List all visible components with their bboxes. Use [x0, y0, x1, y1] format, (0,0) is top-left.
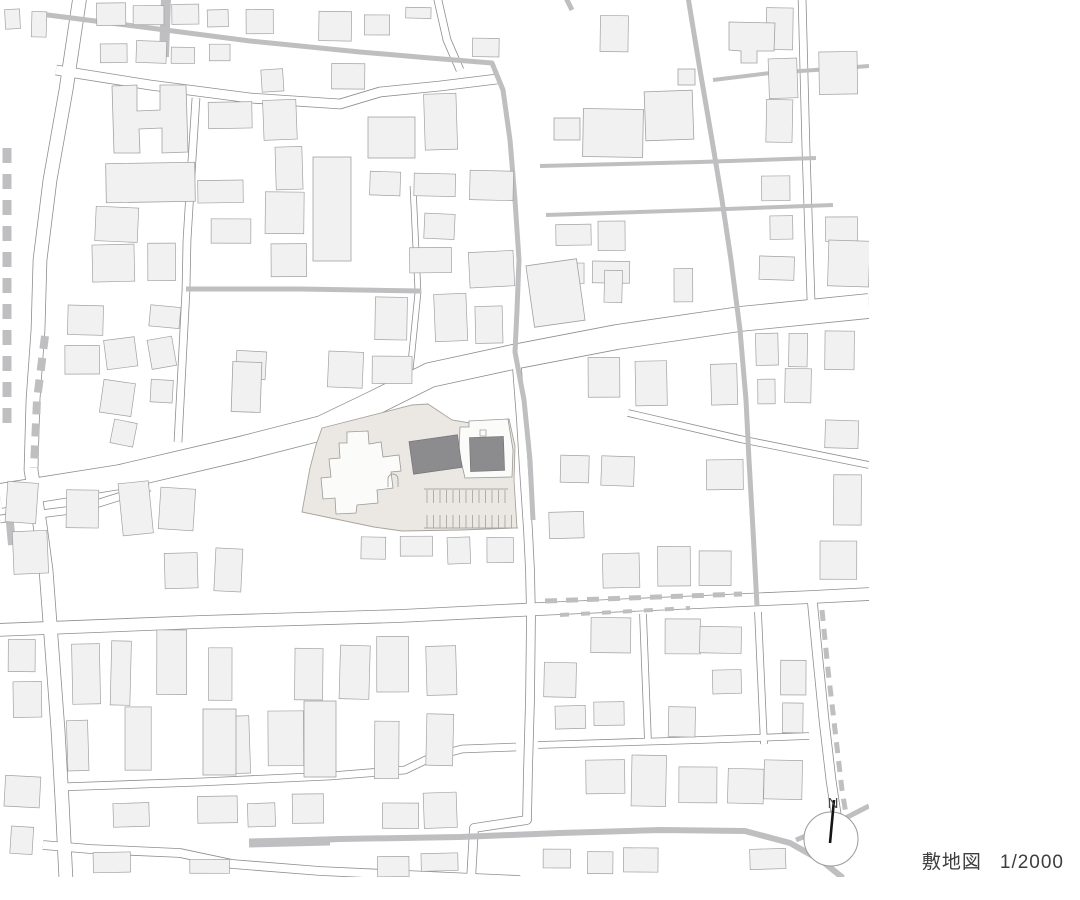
building-footprint: [657, 546, 690, 586]
site-building-b: [469, 436, 504, 471]
building-footprint: [374, 721, 399, 779]
building-footprint: [313, 157, 351, 261]
building-footprint: [268, 711, 304, 766]
building-footprint: [197, 796, 237, 823]
building-footprint: [147, 336, 177, 369]
building-footprint: [136, 41, 167, 64]
building-footprint: [118, 481, 153, 536]
building-footprint: [361, 537, 386, 559]
building-footprint: [820, 541, 857, 579]
building-footprint: [475, 306, 503, 344]
building-footprint: [554, 118, 580, 140]
building-footprint: [148, 243, 176, 280]
building-footprint: [113, 803, 150, 828]
map-canvas: N: [0, 0, 1080, 900]
building-footprint: [275, 146, 303, 190]
page: N 敷地図1/2000: [0, 0, 1080, 900]
building-footprint: [125, 707, 151, 770]
building-footprint: [261, 69, 284, 93]
building-footprint: [679, 767, 717, 803]
building-footprint: [382, 803, 418, 828]
building-footprint: [96, 3, 125, 26]
site-building-a: [409, 435, 462, 474]
map-layers: [0, 0, 870, 880]
building-footprint: [304, 701, 336, 777]
building-footprint: [364, 15, 389, 35]
building-footprint: [377, 636, 409, 692]
building-footprint: [65, 346, 100, 375]
building-footprint: [729, 22, 775, 63]
building-footprint: [10, 826, 34, 855]
north-label: N: [828, 795, 839, 812]
building-footprint: [766, 99, 793, 142]
building-footprint: [295, 648, 324, 700]
building-footprint: [66, 720, 89, 771]
building-footprint: [601, 456, 635, 487]
building-footprint: [100, 44, 127, 63]
building-footprint: [72, 644, 101, 705]
building-footprint: [332, 63, 365, 89]
building-footprint: [819, 51, 858, 94]
building-footprint: [67, 305, 103, 335]
building-footprint: [110, 419, 137, 447]
building-footprint: [434, 293, 468, 341]
building-footprint: [375, 297, 408, 340]
building-footprint: [421, 853, 458, 872]
building-footprint: [678, 69, 695, 85]
building-footprint: [203, 709, 236, 775]
building-footprint: [208, 102, 252, 129]
building-footprint: [588, 357, 620, 397]
building-footprint: [755, 333, 778, 365]
building-footprint: [785, 368, 812, 403]
building-footprint: [4, 775, 41, 808]
building-footprint: [591, 617, 631, 653]
building-footprint: [426, 714, 454, 766]
building-footprint: [406, 7, 431, 18]
building-footprint: [150, 379, 173, 403]
building-footprint: [825, 420, 859, 449]
building-footprint: [587, 852, 613, 874]
building-footprint: [712, 669, 741, 694]
building-footprint: [424, 93, 458, 150]
building-footprint: [198, 180, 244, 203]
building-footprint: [209, 648, 232, 701]
building-footprint: [157, 630, 187, 695]
building-footprint: [644, 90, 694, 141]
building-footprint: [635, 361, 667, 406]
building-footprint: [549, 511, 584, 538]
building-footprint: [263, 99, 298, 140]
building-footprint: [292, 794, 323, 824]
building-footprint: [95, 206, 139, 242]
building-footprint: [825, 331, 855, 370]
building-footprint: [782, 703, 803, 733]
building-footprint: [781, 660, 807, 695]
building-footprint: [190, 859, 230, 873]
building-footprint: [12, 530, 48, 574]
building-footprint: [104, 337, 138, 370]
building-footprint: [727, 768, 764, 804]
building-footprint: [598, 221, 625, 250]
building-footprint: [246, 9, 273, 33]
building-footprint: [231, 362, 262, 413]
building-footprint: [770, 216, 793, 240]
building-footprint: [368, 117, 415, 158]
building-footprint: [265, 192, 304, 234]
building-footprint: [5, 481, 38, 523]
building-footprint: [13, 681, 42, 717]
building-footprint: [556, 224, 592, 245]
building-footprint: [424, 213, 455, 239]
building-footprint: [594, 702, 625, 726]
building-footprint: [214, 548, 243, 592]
building-footprint: [710, 364, 737, 405]
building-footprint: [700, 626, 742, 653]
building-footprint: [99, 379, 135, 416]
building-footprint: [586, 760, 625, 794]
building-footprint: [604, 270, 623, 302]
building-footprint: [110, 641, 131, 706]
building-footprint: [423, 792, 457, 828]
building-footprint: [414, 173, 456, 197]
building-footprint: [93, 852, 131, 873]
building-footprint: [327, 351, 363, 388]
site-entrance-mark: [480, 430, 486, 436]
building-footprint: [133, 6, 164, 25]
building-footprint: [555, 705, 586, 729]
building-footprint: [827, 240, 870, 287]
drawing-scale: 1/2000: [1000, 852, 1064, 873]
building-footprint: [211, 219, 251, 243]
building-footprint: [164, 553, 198, 589]
building-footprint: [271, 244, 307, 277]
building-footprint: [789, 333, 808, 367]
building-footprint: [487, 537, 513, 562]
building-footprint: [158, 487, 195, 531]
building-footprint: [66, 490, 99, 528]
building-footprint: [171, 47, 195, 63]
building-footprint: [400, 536, 432, 556]
building-footprint: [526, 259, 585, 327]
building-footprint: [826, 217, 858, 242]
building-footprint: [339, 645, 370, 699]
building-footprint: [750, 848, 786, 869]
building-footprint: [31, 11, 47, 37]
building-footprint: [833, 475, 861, 525]
building-footprint: [668, 707, 695, 737]
building-footprint: [768, 58, 798, 99]
drawing-title: 敷地図: [922, 852, 982, 873]
building-footprint: [92, 244, 135, 282]
building-footprint: [665, 619, 700, 654]
building-footprint: [112, 85, 188, 153]
building-footprint: [472, 38, 499, 57]
building-footprint: [759, 256, 795, 280]
building-footprint: [699, 551, 731, 586]
building-footprint: [583, 108, 644, 157]
building-footprint: [758, 379, 776, 404]
building-footprint: [469, 170, 513, 200]
building-footprint: [468, 250, 514, 288]
building-footprint: [560, 455, 589, 483]
building-footprint: [172, 4, 199, 24]
building-footprint: [149, 305, 181, 329]
building-footprint: [600, 15, 628, 51]
building-footprint: [706, 459, 743, 489]
building-footprint: [207, 10, 228, 28]
building-footprint: [764, 760, 803, 800]
building-footprint: [5, 9, 21, 29]
building-footprint: [247, 803, 275, 827]
building-footprint: [319, 11, 352, 41]
building-footprint: [209, 44, 230, 61]
building-footprint: [631, 755, 666, 807]
building-footprint: [447, 537, 471, 564]
building-footprint: [106, 162, 196, 203]
building-footprint: [762, 176, 791, 201]
drawing-caption: 敷地図1/2000: [922, 847, 1064, 874]
north-arrow: N: [804, 795, 858, 866]
site-map: N: [0, 0, 1080, 900]
building-footprint: [544, 662, 577, 697]
building-footprint: [372, 356, 412, 384]
building-footprint: [410, 247, 452, 273]
building-footprint: [623, 848, 658, 872]
building-footprint: [377, 856, 409, 877]
building-footprint: [370, 171, 401, 196]
building-footprint: [8, 639, 35, 671]
building-footprint: [602, 553, 640, 588]
building-footprint: [426, 646, 457, 696]
building-footprint: [543, 849, 570, 868]
building-footprint: [674, 269, 693, 302]
